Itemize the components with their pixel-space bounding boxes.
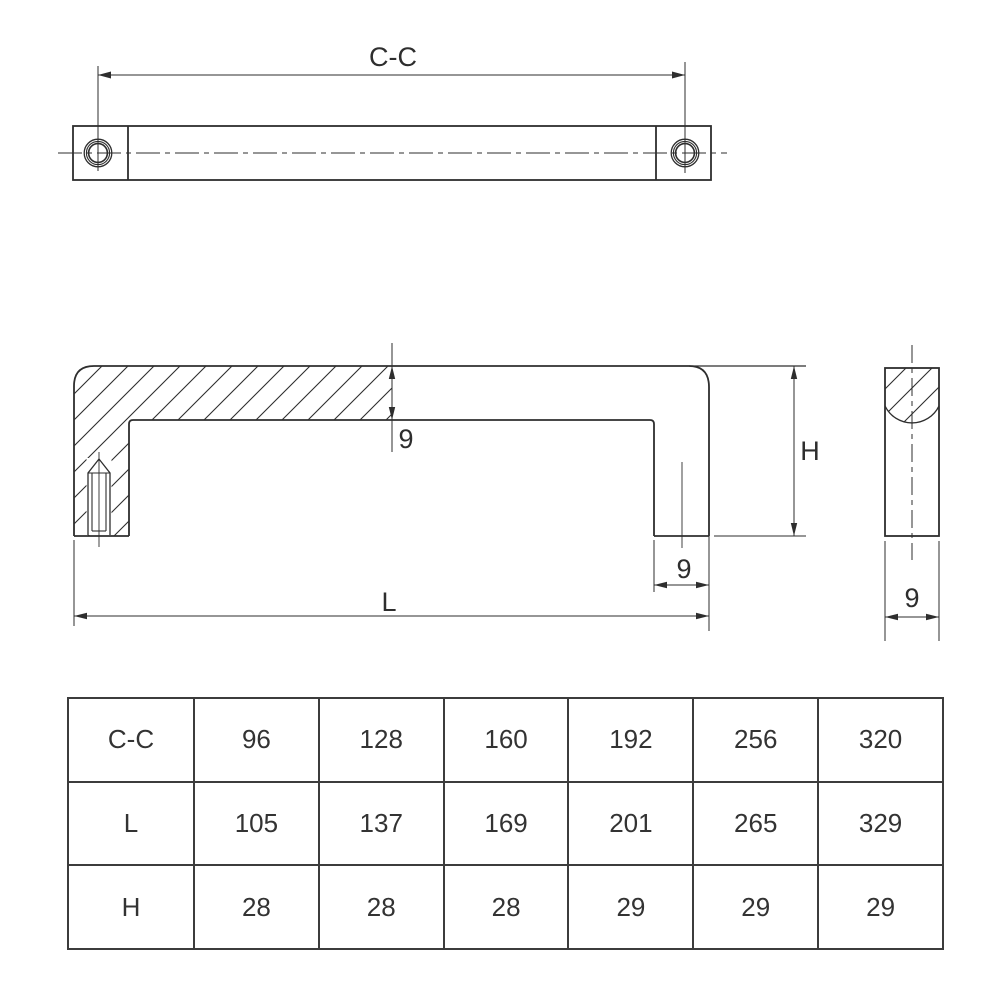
table-cell: 265 [693,782,818,866]
table-cell: 160 [444,698,569,782]
table-cell: 256 [693,698,818,782]
thickness-dimension-label: 9 [398,424,413,454]
table-cell: 320 [818,698,943,782]
table-row-cc: C-C 96 128 160 192 256 320 [68,698,943,782]
table-cell: 192 [568,698,693,782]
table-cell: 105 [194,782,319,866]
table-cell: 128 [319,698,444,782]
leg-width-dimension-label: 9 [676,554,691,584]
table-cell: 29 [693,865,818,949]
table-cell: 329 [818,782,943,866]
table-cell: 29 [568,865,693,949]
row-header-l: L [68,782,194,866]
table-cell: 28 [444,865,569,949]
table-cell: 169 [444,782,569,866]
table-cell: 28 [319,865,444,949]
table-cell: 28 [194,865,319,949]
technical-drawing: C-C [0,0,1000,692]
table-cell: 96 [194,698,319,782]
dimension-table: C-C 96 128 160 192 256 320 L 105 137 169… [67,697,944,950]
row-header-h: H [68,865,194,949]
table-row-h: H 28 28 28 29 29 29 [68,865,943,949]
table-cell: 29 [818,865,943,949]
side-view [885,345,939,560]
row-header-cc: C-C [68,698,194,782]
drawing-canvas: C-C [0,0,1000,1000]
side-width-dimension-label: 9 [904,583,919,613]
top-view [58,126,727,180]
section-hatch [74,366,392,536]
height-dimension [689,366,806,536]
table-cell: 201 [568,782,693,866]
table-cell: 137 [319,782,444,866]
length-dimension-label: L [381,587,396,617]
cc-dimension-label: C-C [369,42,417,72]
height-dimension-label: H [800,436,820,466]
table-row-l: L 105 137 169 201 265 329 [68,782,943,866]
screw-hole [87,452,112,547]
